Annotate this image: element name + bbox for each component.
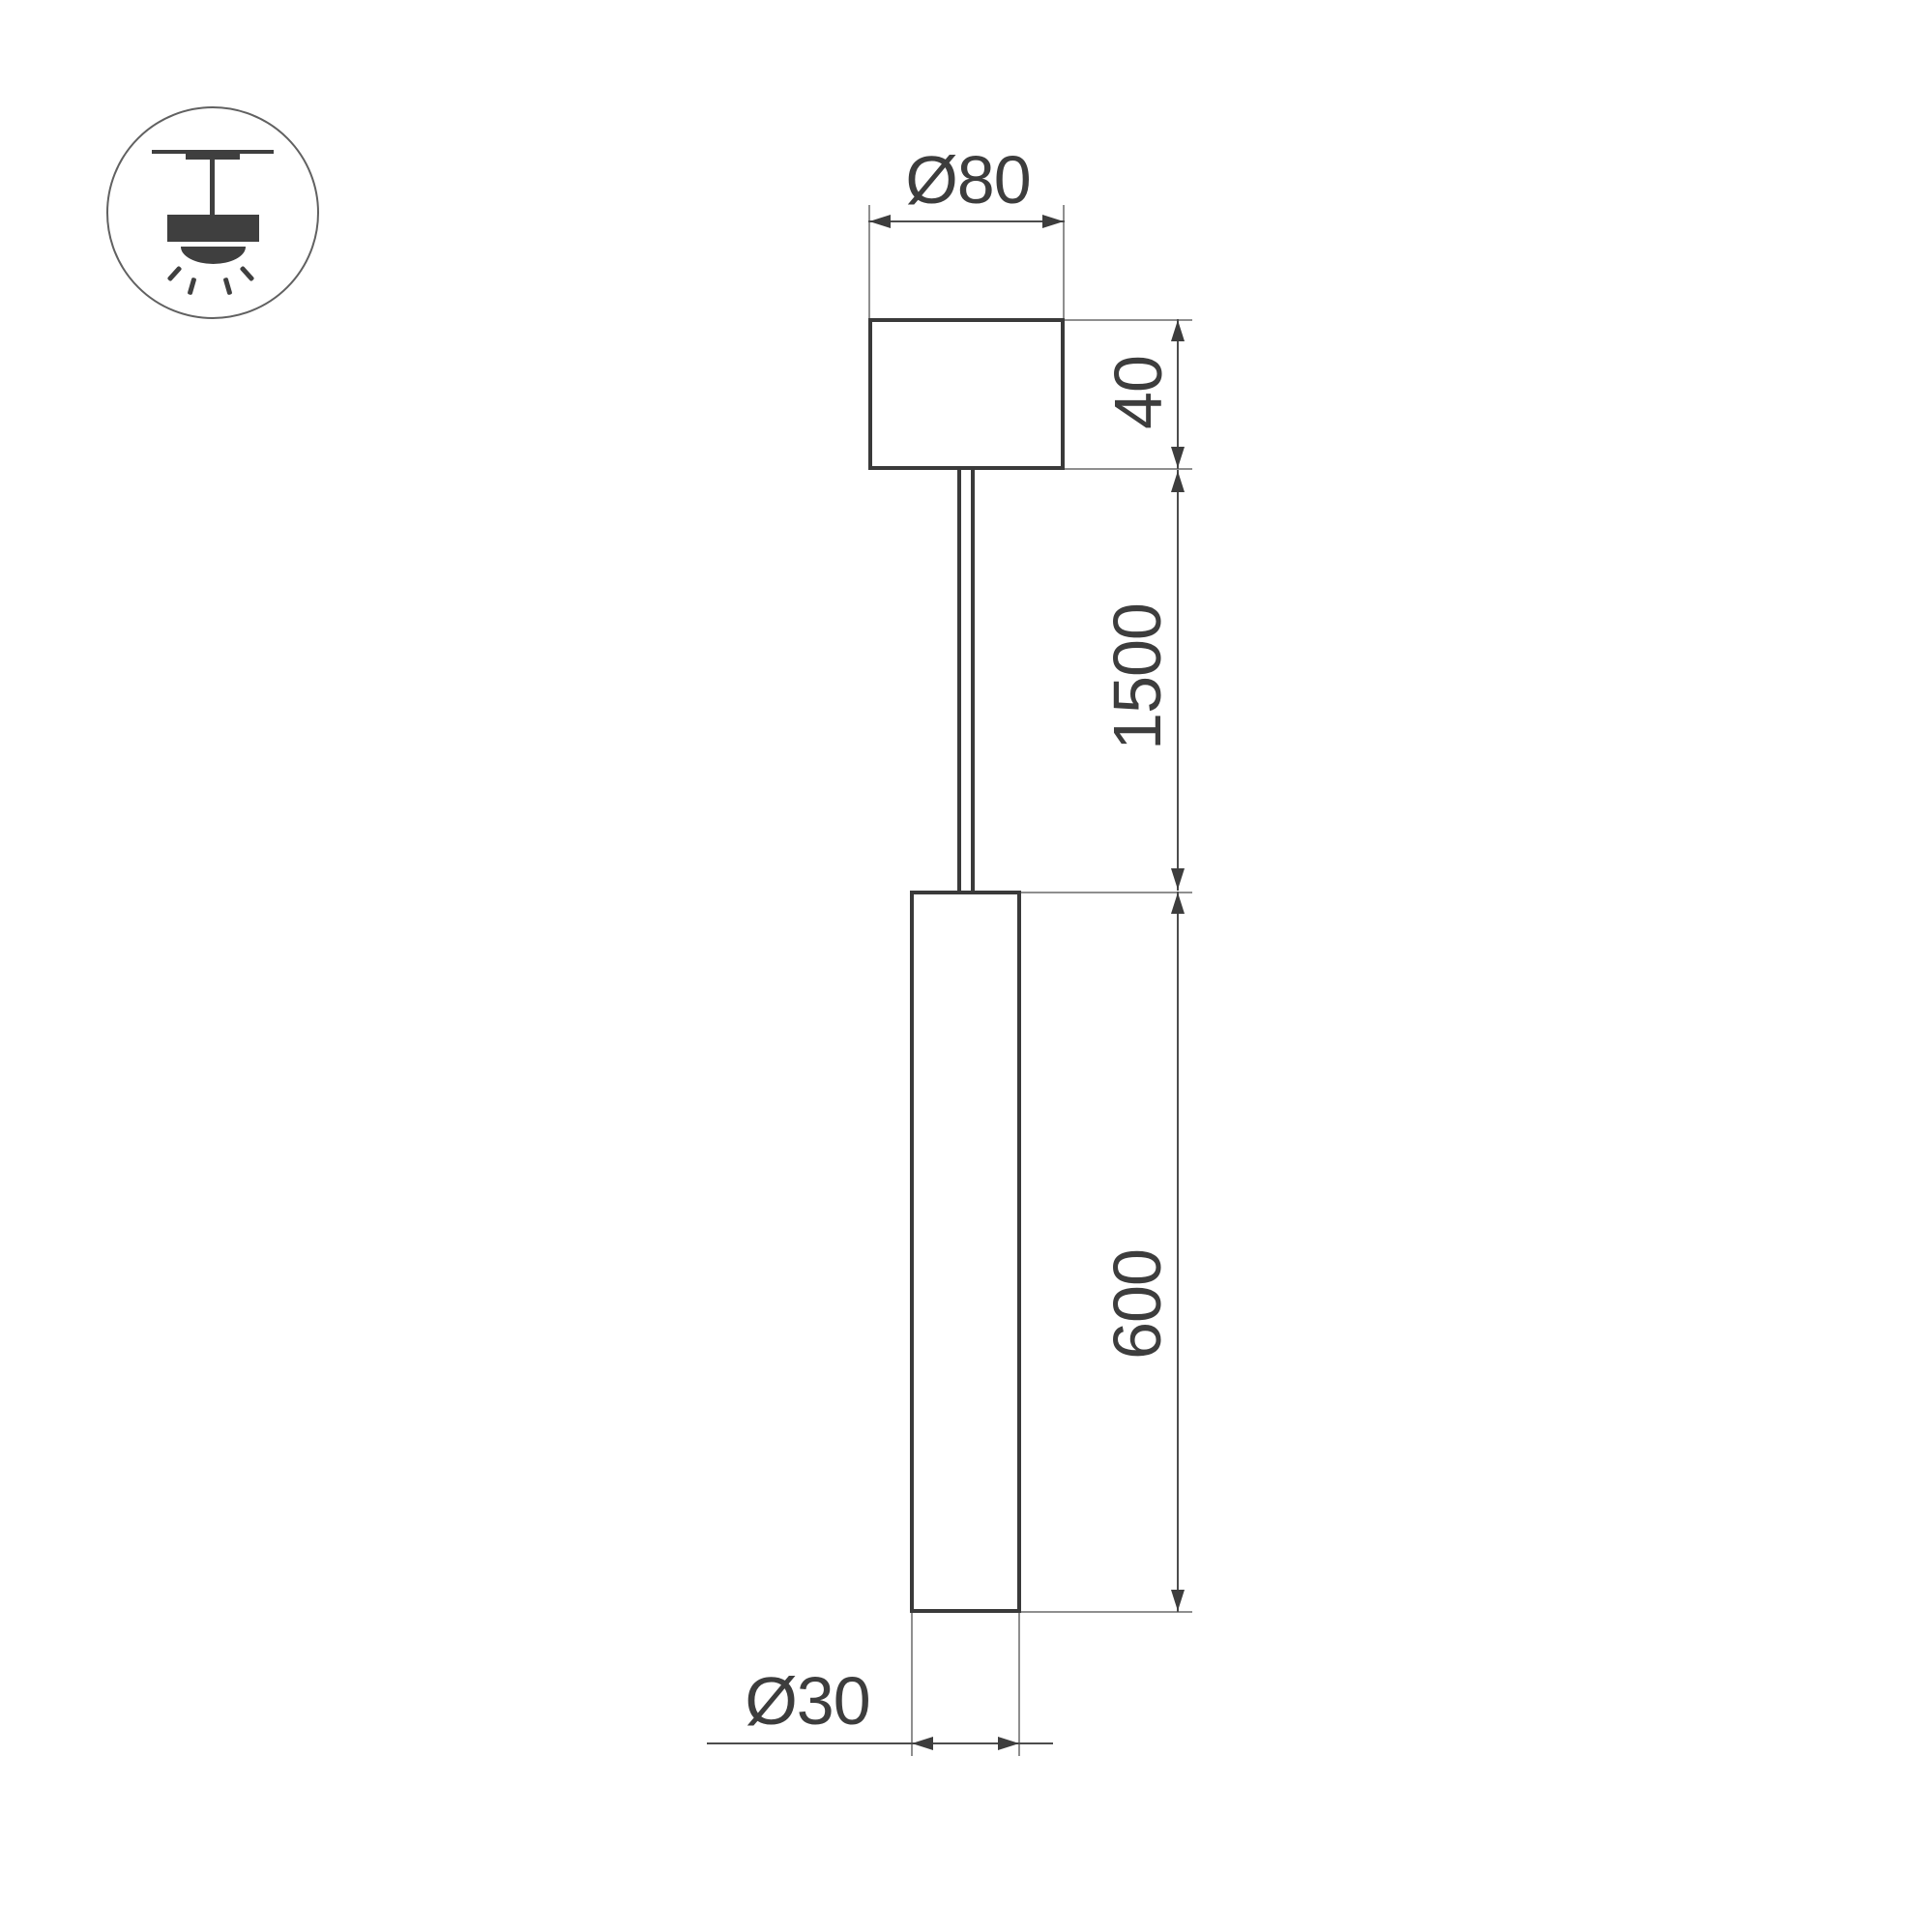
dimension-arrow-icon bbox=[1171, 868, 1185, 890]
extension-line bbox=[911, 1613, 913, 1756]
dimension-line-canopy-diameter bbox=[868, 220, 1065, 222]
icon-lamp-body bbox=[167, 215, 259, 242]
dimension-arrow-icon bbox=[1171, 1590, 1185, 1611]
dimension-arrow-icon bbox=[998, 1737, 1019, 1750]
dim-label-suspension-length: 1500 bbox=[1103, 603, 1171, 750]
lamp-tube bbox=[910, 891, 1021, 1613]
icon-suspension-stem bbox=[210, 159, 215, 215]
drawing-canvas: Ø80 40 1500 600 Ø30 bbox=[0, 0, 1932, 1932]
dimension-arrow-icon bbox=[1042, 215, 1064, 228]
extension-line bbox=[1018, 1613, 1020, 1756]
dimension-arrow-icon bbox=[912, 1737, 933, 1750]
dimension-arrow-icon bbox=[1171, 447, 1185, 468]
dim-label-tube-length: 600 bbox=[1103, 1249, 1171, 1360]
dim-label-canopy-diameter: Ø80 bbox=[905, 146, 1030, 214]
dimension-arrow-icon bbox=[1171, 320, 1185, 341]
dim-label-tube-diameter: Ø30 bbox=[745, 1667, 869, 1735]
dimension-line-tube-length bbox=[1177, 892, 1179, 1612]
dimension-arrow-icon bbox=[869, 215, 891, 228]
extension-line bbox=[1021, 892, 1192, 893]
lamp-canopy bbox=[868, 318, 1065, 470]
suspension-cable bbox=[957, 470, 975, 893]
extension-line bbox=[1065, 468, 1192, 470]
extension-line bbox=[1021, 1611, 1192, 1613]
dim-label-canopy-height: 40 bbox=[1104, 356, 1172, 429]
dimension-arrow-icon bbox=[1171, 471, 1185, 492]
dimension-line-suspension-length bbox=[1177, 470, 1179, 891]
dimension-arrow-icon bbox=[1171, 893, 1185, 914]
